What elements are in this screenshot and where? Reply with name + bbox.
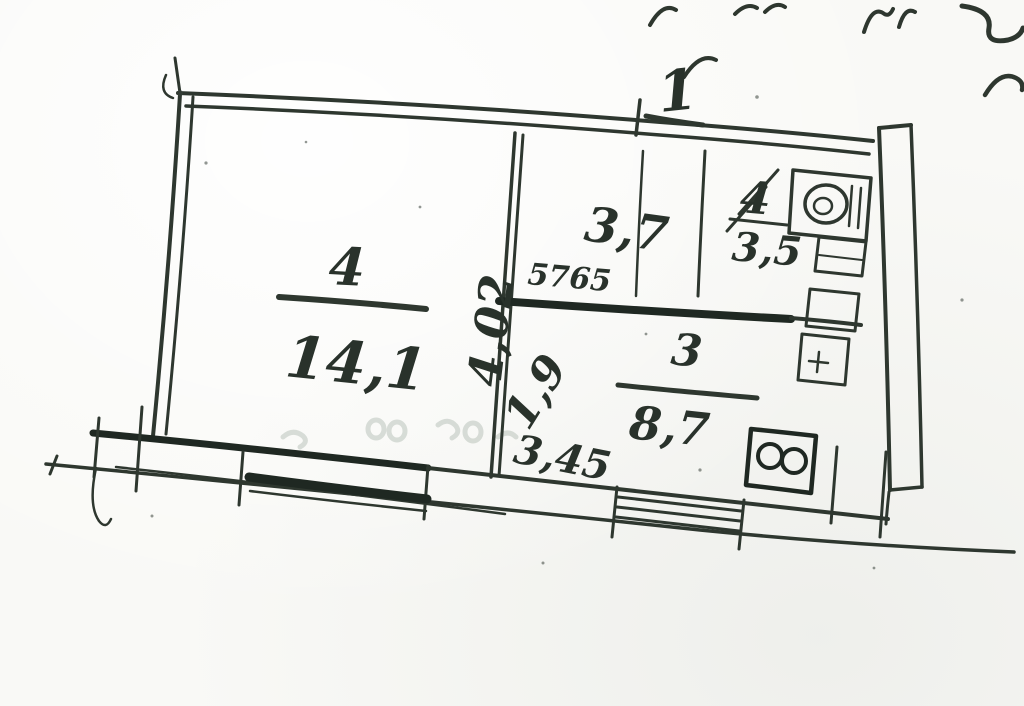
room-label-kitchen: 3 8,7 (618, 324, 757, 457)
outer-wall-top (178, 93, 873, 154)
bathroom-number: 4 (738, 172, 773, 225)
kitchen-number: 3 (669, 324, 705, 378)
toilet-icon (798, 334, 849, 385)
stove-icon (746, 429, 816, 493)
living-room-area: 14,1 (283, 322, 431, 404)
bleedthrough-marks (283, 420, 516, 447)
dimension-wall-vertical: 4,02 (457, 272, 524, 390)
bathroom-area: 3,5 (730, 223, 803, 276)
floorplan-drawing: 1 4 14,1 3,7 4 3,5 3 8,7 4,02 1,9 3,45 5… (0, 0, 1024, 706)
outer-wall-left (153, 58, 193, 436)
kitchen-area: 8,7 (626, 395, 712, 457)
living-room-number: 4 (327, 236, 366, 299)
room-label-hall: 3,7 (581, 196, 671, 263)
paper-speckles (151, 95, 964, 569)
handwriting-fragment-top-right (650, 5, 1023, 95)
dimension-labels: 4,02 1,9 3,45 5765 (457, 257, 614, 490)
cabinet-icon (815, 237, 866, 276)
hall-dimension: 3,7 (581, 196, 671, 263)
apartment-number: 1 (655, 56, 701, 126)
scanned-floorplan-page: 1 4 14,1 3,7 4 3,5 3 8,7 4,02 1,9 3,45 5… (0, 0, 1024, 706)
room-label-living: 4 14,1 (279, 236, 430, 405)
dimension-small-note: 5765 (526, 257, 612, 299)
